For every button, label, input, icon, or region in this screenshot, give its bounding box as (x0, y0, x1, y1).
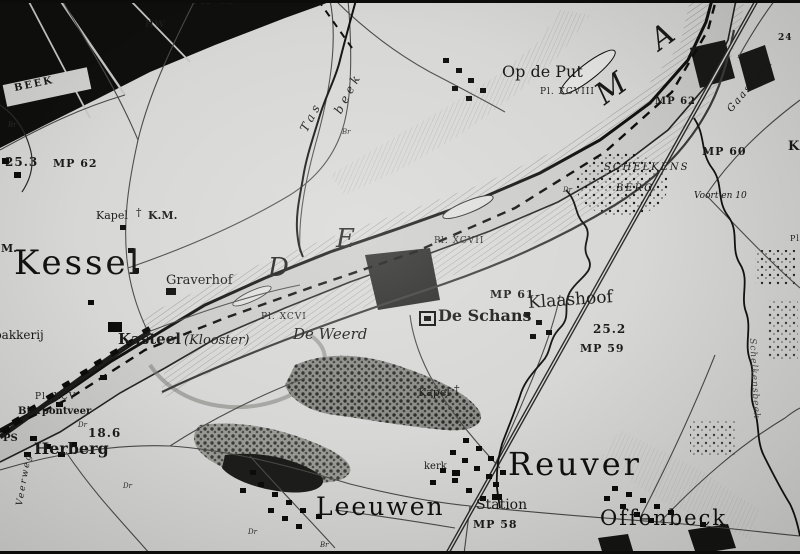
place-label-station: Station (476, 498, 527, 512)
plate-xcviii: Pl. XCVIII (540, 88, 595, 97)
river-letter-d: D (268, 255, 290, 281)
town-label-kessel: Kessel (14, 246, 143, 280)
plate-xcv: Pl. XCV (35, 393, 76, 402)
place-label-herberg: Herberg (34, 441, 109, 457)
milepost-mp62-west: MP 62 (53, 158, 98, 169)
place-label-berg: BERG (616, 184, 654, 194)
milepost-mp61: MP 61 (490, 289, 535, 300)
map-photo: Kessel Reuver Leeuwen Offenbeck Op de Pu… (0, 0, 800, 554)
map-labels: Kessel Reuver Leeuwen Offenbeck Op de Pu… (0, 0, 800, 554)
milepost-mp60: MP 60 (702, 146, 747, 157)
height-25-2: 25.2 (593, 323, 626, 335)
place-label-kerk: kerk (424, 462, 447, 472)
milepost-mp59: MP 59 (580, 343, 625, 354)
place-label-de-schans: De Schans (438, 308, 532, 324)
ford-mark-dr: Dr (123, 483, 132, 490)
stream-label-beek: beek (332, 70, 364, 116)
bridge-mark-br: Br (342, 129, 351, 136)
ford-mark-dr: Dr (248, 529, 257, 536)
river-letter-m: M (590, 68, 633, 111)
stream-label-schelkensbeek: Schelkensbeek (747, 338, 760, 420)
place-label-km: K.M. (148, 210, 177, 221)
town-label-leeuwen: Leeuwen (316, 494, 445, 519)
place-label-klooster: (Klooster) (184, 334, 249, 347)
marker-24: 24 (778, 34, 793, 43)
place-label-op-de-put: Op de Put (502, 64, 583, 80)
place-label-de-weerd: De Weerd (293, 327, 367, 342)
place-label-bakkerij: bakkerij (0, 329, 44, 341)
town-label-offenbeck: Offenbeck (600, 508, 727, 529)
place-label-beek: BEEK (13, 76, 55, 94)
height-25-3: 25.3 (5, 156, 38, 168)
edge-label-k: K (788, 140, 799, 153)
place-label-kasteel: Kasteel (118, 332, 181, 347)
plate-edge: Pl. (790, 235, 800, 243)
place-label-bierpontveer: Bierpontveer (18, 407, 91, 417)
plate-xcvi: Pl. XCVI (261, 313, 307, 322)
photo-frame-top (0, 0, 800, 3)
marker-hw: HW (145, 21, 166, 30)
river-letter-e: E (336, 226, 356, 252)
kapel-cross-icon: † (454, 384, 460, 395)
ford-mark-dr: Dr (78, 422, 87, 429)
place-label-kapel-reuver: Kapel (418, 387, 450, 398)
place-label-graverhof: Graverhof (166, 274, 233, 287)
place-label-ps: PS (3, 434, 18, 444)
place-label-schelkens: SCHELKENS (604, 163, 690, 173)
place-label-klaashoof: Klaashoof (528, 289, 614, 312)
place-label-voort-en: Voort en 10 (694, 192, 747, 201)
ford-mark-dr: Dr (563, 187, 572, 194)
stream-label-gaasbeek: Gaasbeek (726, 58, 776, 114)
stream-label-tas: Tas (298, 99, 324, 133)
place-label-kapel-kessel: Kapel (96, 210, 128, 221)
plate-xcvii: Pl. XCVII (434, 237, 484, 246)
height-18-6: 18.6 (88, 427, 121, 439)
milepost-mp62-east: MP 62 (655, 97, 696, 107)
town-label-reuver: Reuver (508, 448, 642, 480)
road-label-veerweg: Veerweg (16, 452, 34, 506)
bridge-mark-br: Br (8, 122, 17, 129)
edge-label-m: M. (1, 243, 17, 254)
milepost-mp58: MP 58 (473, 519, 518, 530)
river-letter-a: A (645, 18, 681, 56)
kapel-cross-icon: † (136, 207, 142, 218)
bridge-mark-br: Br (320, 542, 329, 549)
